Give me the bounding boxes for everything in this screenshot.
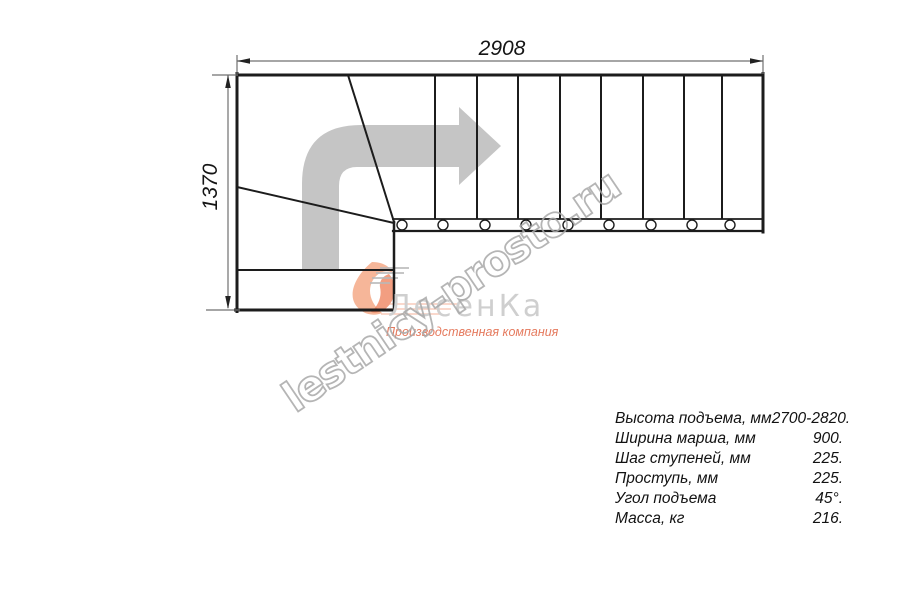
spec-row-height: Высота подъема, мм 2700-2820. — [615, 409, 843, 429]
staircase-drawing-page: 2908 1370 ЛесенКа Производственная компа… — [0, 0, 900, 600]
spec-row-step-pitch: Шаг ступеней, мм 225. — [615, 449, 843, 469]
dimension-lines: 2908 1370 — [199, 37, 763, 310]
spec-label: Ширина марша, мм — [615, 429, 756, 449]
spec-row-mass: Масса, кг 216. — [615, 509, 843, 529]
spec-value: 900. — [813, 429, 843, 449]
winder-tread-line-2 — [237, 187, 394, 223]
logo-ladder-lines-icon — [370, 268, 409, 283]
height-dimension — [206, 75, 240, 310]
spec-value: 2700-2820. — [772, 409, 850, 429]
winder-tread-line-1 — [348, 75, 394, 222]
width-dimension — [237, 55, 763, 74]
height-dimension-label: 1370 — [199, 163, 222, 210]
spec-label: Масса, кг — [615, 509, 684, 529]
spec-label: Шаг ступеней, мм — [615, 449, 751, 469]
width-dimension-label: 2908 — [478, 37, 526, 60]
dim-arrowhead-down — [225, 296, 231, 309]
spec-value: 45°. — [815, 489, 843, 509]
spec-value: 216. — [813, 509, 843, 529]
spec-value: 225. — [813, 469, 843, 489]
direction-arrow-icon — [302, 107, 501, 270]
spec-label: Угол подъема — [615, 489, 716, 509]
dim-arrowhead-right — [750, 58, 763, 64]
spec-row-angle: Угол подъема 45°. — [615, 489, 843, 509]
spec-row-tread: Проступь, мм 225. — [615, 469, 843, 489]
dim-arrowhead-up — [225, 75, 231, 88]
logo-company-name: ЛесенКа — [388, 289, 544, 324]
spec-row-flight-width: Ширина марша, мм 900. — [615, 429, 843, 449]
bolt-circles — [397, 220, 735, 230]
spec-label: Проступь, мм — [615, 469, 718, 489]
spec-label: Высота подъема, мм — [615, 409, 772, 429]
staircase-outline — [236, 74, 764, 312]
tread-lines — [435, 77, 722, 219]
spec-table: Высота подъема, мм 2700-2820. Ширина мар… — [615, 409, 843, 529]
logo-tagline: Производственная компания — [386, 325, 558, 339]
spec-value: 225. — [813, 449, 843, 469]
dim-arrowhead-left — [237, 58, 250, 64]
